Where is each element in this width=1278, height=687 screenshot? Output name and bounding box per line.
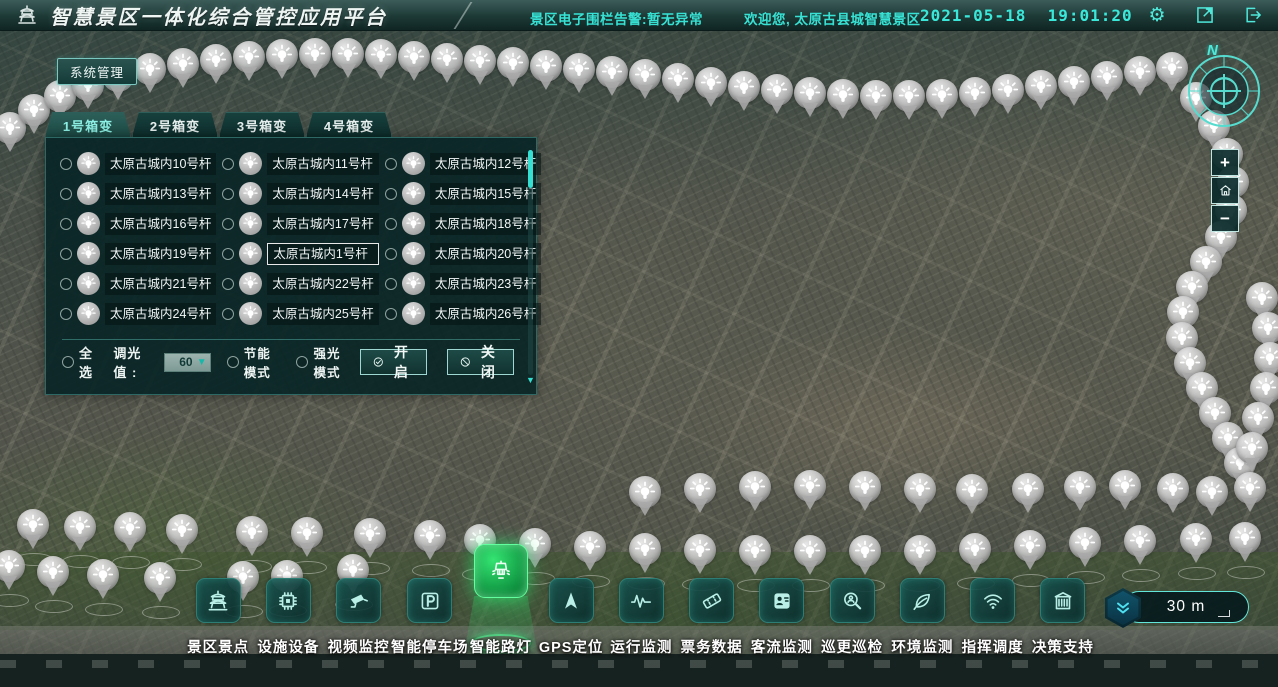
bulb-icon [402, 242, 425, 265]
lamp-label: 太原古城内18号杆 [430, 213, 541, 235]
system-management-button[interactable]: 系统管理 [57, 58, 137, 85]
street-lamp-panel: 1号箱变2号箱变3号箱变4号箱变 太原古城内10号杆太原古城内11号杆太原古城内… [45, 112, 537, 395]
toolbar-item-street-lamp[interactable]: 智能路灯 [466, 578, 536, 657]
bulb-icon [1073, 531, 1097, 555]
lamp-item[interactable]: 太原古城内14号杆 [222, 182, 378, 205]
settings-icon[interactable]: ⚙ [1146, 4, 1168, 26]
lamp-radio[interactable] [222, 158, 234, 170]
toolbar-tile[interactable] [407, 578, 452, 623]
close-lamps-button[interactable]: 关闭 [447, 349, 514, 375]
bulb-icon [743, 475, 767, 499]
street-lamp-pin[interactable] [236, 516, 268, 548]
lamp-radio[interactable] [385, 278, 397, 290]
close-lamps-label: 关闭 [477, 342, 501, 382]
bulb-icon [1029, 74, 1053, 98]
eco-mode-option[interactable]: 节能模式 [227, 343, 283, 381]
street-lamp-pin[interactable] [37, 556, 69, 588]
street-lamp-pin[interactable] [959, 77, 991, 109]
bulb-icon [239, 242, 262, 265]
lamp-label: 太原古城内25号杆 [267, 303, 378, 325]
lamp-label: 太原古城内11号杆 [267, 153, 378, 175]
wifi-icon [980, 588, 1006, 614]
bulb-icon [295, 521, 319, 545]
bulb-icon [336, 42, 360, 66]
bulb-icon [77, 302, 100, 325]
street-lamp-pin[interactable] [1124, 56, 1156, 88]
toolbar-tile[interactable] [266, 578, 311, 623]
lamp-item[interactable]: 太原古城内26号杆 [385, 302, 541, 325]
street-lamp-pin[interactable] [684, 534, 716, 566]
bulb-icon [1200, 480, 1224, 504]
street-lamp-pin[interactable] [431, 43, 463, 75]
street-lamp-pin[interactable] [596, 56, 628, 88]
lamp-label: 太原古城内19号杆 [105, 243, 216, 265]
bright-mode-option[interactable]: 强光模式 [296, 343, 352, 381]
toolbar-tile[interactable] [830, 578, 875, 623]
home-icon [1218, 183, 1233, 198]
lamp-radio[interactable] [222, 218, 234, 230]
lamp-item[interactable]: 太原古城内25号杆 [222, 302, 378, 325]
zoom-in-button[interactable]: + [1211, 149, 1239, 176]
bulb-icon [418, 524, 442, 548]
street-lamp-pin[interactable] [530, 50, 562, 82]
street-lamp-pin[interactable] [574, 531, 606, 563]
gps-arrow-icon [558, 588, 584, 614]
bulb-icon [402, 302, 425, 325]
bulb-icon [402, 272, 425, 295]
lamp-radio[interactable] [222, 248, 234, 260]
street-lamp-pin[interactable] [1157, 473, 1189, 505]
street-lamp-pin[interactable] [1025, 70, 1057, 102]
building-icon [1050, 588, 1076, 614]
street-lamp-pin[interactable] [849, 535, 881, 567]
lamp-radio[interactable] [385, 158, 397, 170]
street-lamp-pin[interactable] [827, 79, 859, 111]
bulb-icon [1113, 474, 1137, 498]
date-text: 2021-05-18 [920, 6, 1026, 25]
street-lamp-pin[interactable] [332, 38, 364, 70]
bulb-icon [534, 54, 558, 78]
street-lamp-pin[interactable] [464, 45, 496, 77]
toolbar-item-visitor-card[interactable]: 客流监测 [747, 578, 817, 657]
lamp-item[interactable]: 太原古城内16号杆 [60, 212, 216, 235]
street-lamp-pin[interactable] [291, 517, 323, 549]
toolbar-label: 票务数据 [681, 636, 743, 657]
street-lamp-pin[interactable] [695, 67, 727, 99]
street-lamp-pin[interactable] [904, 473, 936, 505]
bulb-icon [963, 537, 987, 561]
waveform-icon [628, 588, 654, 614]
bulb-icon [21, 513, 45, 537]
lamp-radio[interactable] [385, 218, 397, 230]
street-lamp-pin[interactable] [497, 47, 529, 79]
street-lamp-pin[interactable] [629, 533, 661, 565]
lamp-label: 太原古城内24号杆 [105, 303, 216, 325]
open-lamps-button[interactable]: 开启 [360, 349, 427, 375]
street-lamp-pin[interactable] [1236, 432, 1268, 464]
chevron-down-icon: ▼ [197, 357, 207, 368]
toolbar-tile[interactable] [759, 578, 804, 623]
bulb-icon [1233, 526, 1257, 550]
street-lamp-pin[interactable] [662, 63, 694, 95]
street-lamp-pin[interactable] [956, 474, 988, 506]
street-lamp-pin[interactable] [684, 473, 716, 505]
bulb-icon [468, 49, 492, 73]
prohibit-circle-icon [460, 355, 471, 369]
app-stage: 智慧景区一体化综合管控应用平台 景区电子围栏告警:暂无异常 欢迎您, 太原古县城… [0, 0, 1278, 687]
bulb-icon [303, 42, 327, 66]
lamp-radio[interactable] [60, 218, 72, 230]
toolbar-item-pagoda[interactable]: 景区景点 [183, 578, 253, 657]
bulb-icon [633, 63, 657, 87]
bulb-icon [358, 522, 382, 546]
transformer-tabs: 1号箱变2号箱变3号箱变4号箱变 [45, 112, 537, 137]
bulb-icon [1171, 300, 1195, 324]
street-lamp-pin[interactable] [959, 533, 991, 565]
street-lamp-pin[interactable] [354, 518, 386, 550]
bulb-icon [666, 67, 690, 91]
bulb-icon [41, 560, 65, 584]
lamp-radio[interactable] [385, 188, 397, 200]
toolbar-label: 巡更巡检 [821, 636, 883, 657]
street-lamp-pin[interactable] [1124, 525, 1156, 557]
street-lamp-pin[interactable] [739, 471, 771, 503]
lamp-item[interactable]: 太原古城内21号杆 [60, 272, 216, 295]
select-all-radio[interactable] [62, 356, 74, 368]
lamp-item[interactable]: 太原古城内18号杆 [385, 212, 541, 235]
lamp-item[interactable]: 太原古城内20号杆 [385, 242, 541, 265]
bulb-icon [567, 57, 591, 81]
street-lamp-pin[interactable] [1242, 402, 1274, 434]
home-button[interactable] [1211, 177, 1239, 204]
street-lamp-pin[interactable] [87, 559, 119, 591]
lamp-radio[interactable] [222, 188, 234, 200]
lamp-label: 太原古城内23号杆 [430, 273, 541, 295]
select-all-option[interactable]: 全选 [62, 343, 97, 381]
lamp-label: 太原古城内14号杆 [267, 183, 378, 205]
street-lamp-pin[interactable] [926, 79, 958, 111]
bulb-icon [239, 302, 262, 325]
lamp-radio[interactable] [60, 158, 72, 170]
street-lamp-pin[interactable] [893, 80, 925, 112]
lamp-label: 太原古城内10号杆 [105, 153, 216, 175]
lamp-item[interactable]: 太原古城内22号杆 [222, 272, 378, 295]
bulb-icon [435, 47, 459, 71]
bulb-icon [48, 84, 72, 108]
lamp-radio[interactable] [222, 308, 234, 320]
bulb-icon [853, 475, 877, 499]
street-lamp-pin[interactable] [299, 38, 331, 70]
cctv-camera-icon [346, 588, 372, 614]
street-lamp-pin[interactable] [794, 470, 826, 502]
street-lamp-pin[interactable] [114, 512, 146, 544]
street-lamp-pin[interactable] [1012, 473, 1044, 505]
street-lamp-pin[interactable] [1069, 527, 1101, 559]
street-lamp-pin[interactable] [1196, 476, 1228, 508]
toolbar-item-chip[interactable]: 设施设备 [253, 578, 323, 657]
bulb-icon [960, 478, 984, 502]
lamp-radio[interactable] [222, 278, 234, 290]
bulb-icon [1062, 70, 1086, 94]
street-lamp-pin[interactable] [365, 39, 397, 71]
toolbar-item-leaf[interactable]: 环境监测 [887, 578, 957, 657]
dim-value-select[interactable]: 60 ▼ [164, 353, 211, 372]
street-lamp-pin[interactable] [629, 476, 661, 508]
street-lamp-pin[interactable] [1058, 66, 1090, 98]
street-lamp-pin[interactable] [167, 48, 199, 80]
street-lamp-pin[interactable] [739, 535, 771, 567]
toolbar-item-waveform[interactable]: 运行监测 [606, 578, 676, 657]
bulb-icon [1128, 529, 1152, 553]
bulb-icon [68, 515, 92, 539]
chip-icon [275, 588, 301, 614]
bulb-icon [1250, 286, 1274, 310]
bulb-icon [402, 212, 425, 235]
bulb-icon [77, 182, 100, 205]
bulb-icon [1256, 316, 1278, 340]
bulb-icon [963, 81, 987, 105]
datetime-clock: 2021-05-18 19:01:20 [920, 6, 1133, 25]
bulb-icon [908, 477, 932, 501]
tab-transformer-4[interactable]: 4号箱变 [306, 112, 392, 137]
scrollbar-down-arrow[interactable]: ▼ [526, 375, 535, 385]
map-scale-control: 30 m [1103, 588, 1249, 628]
toolbar-item-cctv-camera[interactable]: 视频监控 [324, 578, 394, 657]
bulb-icon [1016, 477, 1040, 501]
street-lamp-pin[interactable] [904, 535, 936, 567]
toolbar-label: 指挥调度 [962, 636, 1024, 657]
lamp-label: 太原古城内21号杆 [105, 273, 216, 295]
lamp-item[interactable]: 太原古城内13号杆 [60, 182, 216, 205]
toolbar-tile[interactable] [970, 578, 1015, 623]
select-all-label: 全选 [79, 343, 97, 381]
bulb-icon [1095, 65, 1119, 89]
visitor-card-icon [769, 588, 795, 614]
street-lamp-pin[interactable] [1014, 530, 1046, 562]
toolbar-item-patrol-magnifier[interactable]: 巡更巡检 [817, 578, 887, 657]
bright-mode-radio[interactable] [296, 356, 308, 368]
compass-control[interactable]: N [1185, 44, 1263, 126]
bulb-icon [1160, 56, 1184, 80]
bulb-icon [1258, 346, 1278, 370]
bulb-icon [864, 84, 888, 108]
bulb-icon [732, 75, 756, 99]
lamp-label: 太原古城内26号杆 [430, 303, 541, 325]
bulb-icon [402, 45, 426, 69]
street-lamp-pin[interactable] [1254, 342, 1278, 374]
eco-mode-radio[interactable] [227, 356, 239, 368]
header-divider [454, 2, 473, 29]
bulb-icon [1068, 475, 1092, 499]
bulb-icon [170, 518, 194, 542]
lamp-item[interactable]: 太原古城内23号杆 [385, 272, 541, 295]
bulb-icon [0, 554, 21, 578]
lamp-item[interactable]: 太原古城内17号杆 [222, 212, 378, 235]
street-lamp-pin[interactable] [266, 39, 298, 71]
street-lamp-pin[interactable] [134, 53, 166, 85]
toolbar-item-building[interactable]: 决策支持 [1028, 578, 1098, 657]
toolbar-item-parking[interactable]: 智能停车场 [394, 578, 466, 657]
bulb-icon [77, 242, 100, 265]
street-lamp-pin[interactable] [1180, 523, 1212, 555]
lamp-item[interactable]: 太原古城内24号杆 [60, 302, 216, 325]
ticket-icon [699, 588, 725, 614]
toolbar-label: 景区景点 [187, 636, 249, 657]
lamp-item[interactable]: 太原古城内1号杆 [222, 242, 378, 265]
pagoda-icon [205, 588, 231, 614]
patrol-magnifier-icon [839, 588, 865, 614]
lamp-item[interactable]: 太原古城内19号杆 [60, 242, 216, 265]
lamp-label: 太原古城内20号杆 [430, 243, 541, 265]
bottom-toolbar: 景区景点设施设备视频监控智能停车场智能路灯GPS定位运行监测票务数据客流监测巡更… [183, 578, 1098, 657]
bulb-icon [402, 152, 425, 175]
scrollbar-thumb[interactable] [528, 150, 533, 188]
street-lamp-pin[interactable] [992, 74, 1024, 106]
street-lamp-pin[interactable] [414, 520, 446, 552]
lamp-list: 太原古城内10号杆太原古城内11号杆太原古城内12号杆太原古城内13号杆太原古城… [46, 138, 536, 331]
bulb-icon [237, 45, 261, 69]
bulb-icon [1238, 476, 1262, 500]
street-lamp-pin[interactable] [563, 53, 595, 85]
street-lamp-pin[interactable] [1109, 470, 1141, 502]
street-lamp-pin[interactable] [17, 509, 49, 541]
toolbar-label: 视频监控 [328, 636, 390, 657]
street-lamp-pin[interactable] [794, 77, 826, 109]
lamp-item[interactable]: 太原古城内10号杆 [60, 152, 216, 175]
bulb-icon [1254, 376, 1278, 400]
fullscreen-icon[interactable] [1194, 4, 1216, 26]
map-zoom-control: + − [1211, 149, 1239, 233]
bulb-icon [402, 182, 425, 205]
tab-transformer-3[interactable]: 3号箱变 [219, 112, 305, 137]
street-lamp-pin[interactable] [1064, 471, 1096, 503]
lamp-label: 太原古城内15号杆 [430, 183, 541, 205]
toolbar-tile[interactable] [474, 544, 528, 598]
bulb-icon [77, 212, 100, 235]
bulb-icon [118, 516, 142, 540]
street-lamp-pin[interactable] [728, 71, 760, 103]
lamp-label: 太原古城内16号杆 [105, 213, 216, 235]
bulb-icon [171, 52, 195, 76]
toolbar-tile[interactable] [689, 578, 734, 623]
bulb-icon [897, 84, 921, 108]
dim-value-text: 60 [179, 355, 192, 369]
double-chevron-down-icon [1114, 599, 1132, 617]
toolbar-label: 客流监测 [751, 636, 813, 657]
toolbar-label: 环境监测 [891, 636, 953, 657]
zoom-out-button[interactable]: − [1211, 205, 1239, 232]
street-lamp-pin[interactable] [233, 41, 265, 73]
lamp-item[interactable]: 太原古城内12号杆 [385, 152, 541, 175]
bulb-icon [148, 566, 172, 590]
bulb-icon [1128, 60, 1152, 84]
compass-rose-icon [1185, 52, 1263, 130]
toolbar-tile[interactable] [1040, 578, 1085, 623]
tab-transformer-1[interactable]: 1号箱变 [45, 112, 131, 137]
toolbar-tile[interactable] [619, 578, 664, 623]
lamp-radio[interactable] [385, 308, 397, 320]
lamp-radio[interactable] [60, 188, 72, 200]
bulb-icon [996, 78, 1020, 102]
street-lamp-pin[interactable] [761, 74, 793, 106]
street-lamp-pin[interactable] [64, 511, 96, 543]
parking-icon [417, 588, 443, 614]
street-lamp-pin[interactable] [794, 535, 826, 567]
bulb-icon [600, 60, 624, 84]
toolbar-item-ticket[interactable]: 票务数据 [677, 578, 747, 657]
bulb-icon [930, 83, 954, 107]
street-lamp-pin[interactable] [0, 550, 25, 582]
lamp-item[interactable]: 太原古城内11号杆 [222, 152, 378, 175]
toolbar-tile[interactable] [196, 578, 241, 623]
street-lamp-pin[interactable] [629, 59, 661, 91]
street-lamp-pin[interactable] [200, 44, 232, 76]
street-lamp-pin[interactable] [1246, 282, 1278, 314]
bulb-icon [831, 83, 855, 107]
check-circle-icon [373, 355, 384, 369]
street-lamp-pin[interactable] [166, 514, 198, 546]
bulb-icon [908, 539, 932, 563]
app-title: 智慧景区一体化综合管控应用平台 [50, 1, 388, 30]
toolbar-item-wifi[interactable]: 指挥调度 [958, 578, 1028, 657]
street-lamp-pin[interactable] [860, 80, 892, 112]
toolbar-label: GPS定位 [539, 636, 604, 657]
lamp-list-scrollbar[interactable]: ▼ [528, 150, 533, 375]
street-lamp-pin[interactable] [1234, 472, 1266, 504]
street-lamp-pin[interactable] [1156, 52, 1188, 84]
street-lamp-pin[interactable] [1252, 312, 1278, 344]
lamp-label: 太原古城内22号杆 [267, 273, 378, 295]
top-header-bar: 智慧景区一体化综合管控应用平台 景区电子围栏告警:暂无异常 欢迎您, 太原古县城… [0, 0, 1278, 31]
lamp-radio[interactable] [385, 248, 397, 260]
street-lamp-pin[interactable] [1091, 61, 1123, 93]
toolbar-label: 决策支持 [1032, 636, 1094, 657]
bulb-icon [765, 78, 789, 102]
lamp-item[interactable]: 太原古城内15号杆 [385, 182, 541, 205]
lamp-radio[interactable] [60, 278, 72, 290]
leaf-icon [909, 588, 935, 614]
street-lamp-pin[interactable] [849, 471, 881, 503]
bulb-icon [1246, 406, 1270, 430]
logout-icon[interactable] [1242, 4, 1264, 26]
bulb-icon [1184, 527, 1208, 551]
lamp-radio[interactable] [60, 248, 72, 260]
toolbar-tile[interactable] [549, 578, 594, 623]
pagoda-logo-icon [14, 3, 40, 27]
toolbar-label: 智能路灯 [470, 636, 532, 657]
tab-transformer-2[interactable]: 2号箱变 [132, 112, 218, 137]
toolbar-tile[interactable] [900, 578, 945, 623]
bright-mode-label: 强光模式 [313, 343, 352, 381]
street-lamp-pin[interactable] [398, 41, 430, 73]
street-lamp-pin[interactable] [1229, 522, 1261, 554]
toolbar-label: 运行监测 [610, 636, 672, 657]
bulb-icon [239, 272, 262, 295]
toolbar-item-gps-arrow[interactable]: GPS定位 [536, 578, 606, 657]
toolbar-tile[interactable] [336, 578, 381, 623]
bulb-icon [798, 474, 822, 498]
lamp-radio[interactable] [60, 308, 72, 320]
bulb-icon [743, 539, 767, 563]
bulb-icon [1018, 534, 1042, 558]
lamp-panel-body: 太原古城内10号杆太原古城内11号杆太原古城内12号杆太原古城内13号杆太原古城… [45, 137, 537, 395]
bulb-icon [633, 537, 657, 561]
bulb-icon [239, 152, 262, 175]
street-lamp-pin[interactable] [1250, 372, 1278, 404]
lamp-label: 太原古城内12号杆 [430, 153, 541, 175]
scale-display: 30 m [1123, 591, 1249, 623]
street-lamp-pin[interactable] [144, 562, 176, 594]
